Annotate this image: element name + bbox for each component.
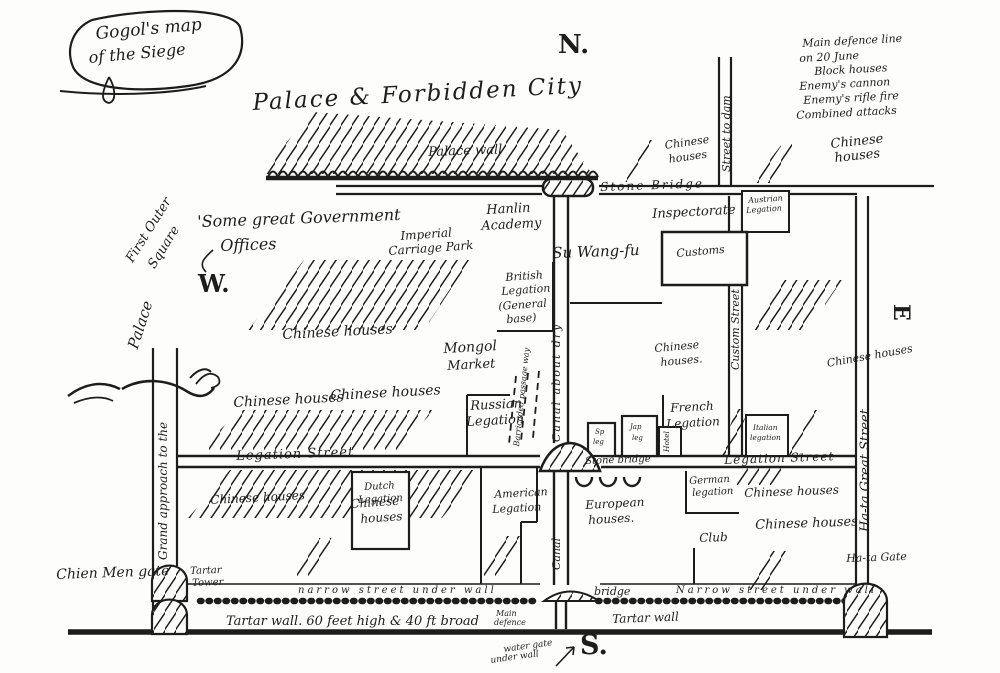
compass-south: S. — [580, 632, 608, 659]
label-legation-street-east: Legation Street — [724, 450, 834, 466]
label-main-defence-2: defence — [494, 619, 526, 627]
label-spanish-legation-2: leg — [593, 439, 604, 446]
customs-box — [662, 232, 747, 285]
label-italian-legation-2: legation — [750, 434, 781, 442]
label-legation-street-west: Legation Street — [236, 446, 354, 463]
label-canal: Canal — [551, 538, 562, 570]
label-british-legation-3: (General — [498, 298, 547, 312]
water-gate-bridge-icon — [544, 592, 599, 602]
label-club: Club — [699, 531, 728, 544]
tree-squiggles — [68, 369, 219, 403]
label-european-houses-1: European — [585, 496, 645, 511]
label-grand-approach: Grand approach to the — [157, 422, 169, 560]
label-narrow-street-west: narrow street under wall — [298, 586, 497, 596]
label-chien-men-gate: Chien Men gate — [56, 564, 170, 582]
label-german-legation-2: legation — [692, 487, 734, 499]
label-italian-legation-1: Italian — [753, 424, 778, 432]
label-hanlin-academy-1: Hanlin — [486, 202, 531, 217]
label-hotel: Hotel — [663, 431, 671, 452]
label-custom-street: Custom Street — [730, 289, 741, 370]
label-government-offices-2: Offices — [220, 236, 277, 254]
label-main-defence-1: Main — [496, 610, 517, 618]
label-french-legation-1: French — [670, 400, 714, 414]
label-canal-about-dry: Canal about dry — [551, 323, 562, 442]
label-bridge-south: bridge — [594, 586, 630, 597]
hatch-areas — [188, 112, 842, 590]
label-dutch-legation-1: Dutch — [364, 481, 395, 493]
label-russian-legation-2: Legation — [466, 413, 525, 429]
label-american-legation-1: American — [494, 486, 548, 500]
label-american-legation-2: Legation — [492, 501, 542, 515]
label-chinese-houses-midright-2: houses. — [660, 353, 703, 368]
label-spanish-legation-1: Sp — [595, 429, 604, 436]
label-german-legation-1: German — [689, 475, 730, 487]
label-stone-bridge-top: Stone Bridge — [600, 177, 704, 193]
label-tartar-wall-east: Tartar wall — [612, 611, 679, 625]
label-british-legation-2: Legation — [501, 283, 551, 297]
label-mongol-market-2: Market — [447, 357, 496, 372]
label-japanese-legation-2: leg — [632, 435, 643, 442]
stone-bridge-top-icon — [543, 179, 593, 196]
label-mongol-market-1: Mongol — [443, 339, 497, 356]
label-french-legation-2: Legation — [666, 415, 720, 430]
siege-map: Gogol's map of the Siege N. W. S. E Main… — [0, 0, 1000, 673]
label-chinese-houses-se1: Chinese houses — [744, 484, 839, 499]
label-su-wang-fu: Su Wang-fu — [552, 243, 640, 261]
compass-west: W. — [198, 272, 230, 296]
label-street-to-dam: Street to dam — [721, 95, 732, 172]
label-palace-wall: Palace wall — [428, 143, 503, 159]
label-russian-legation-1: Russian — [470, 397, 522, 413]
label-european-houses-2: houses. — [588, 512, 634, 526]
label-tartar-tower-2: Tower — [192, 578, 224, 589]
label-hanlin-academy-2: Academy — [481, 217, 542, 233]
label-tartar-wall-main: Tartar wall. 60 feet high & 40 ft broad — [226, 615, 479, 628]
legend-line-2: on 20 June — [799, 50, 859, 64]
label-tartar-tower-1: Tartar — [190, 566, 222, 577]
label-chinese-houses-sw2-2: houses — [360, 510, 403, 525]
compass-north: N. — [558, 32, 589, 58]
label-hata-gate: Ha-ta Gate — [846, 551, 907, 564]
label-japanese-legation-1: Jap — [630, 424, 641, 431]
label-chinese-houses-se2: Chinese houses — [755, 515, 858, 532]
label-hata-great-street: Ha-ta Great Street — [859, 409, 872, 532]
label-narrow-street-east: Narrow street under wall — [676, 586, 877, 596]
label-british-legation-4: base) — [506, 312, 537, 325]
label-british-legation-1: British — [505, 269, 543, 283]
compass-east: E — [890, 304, 912, 321]
